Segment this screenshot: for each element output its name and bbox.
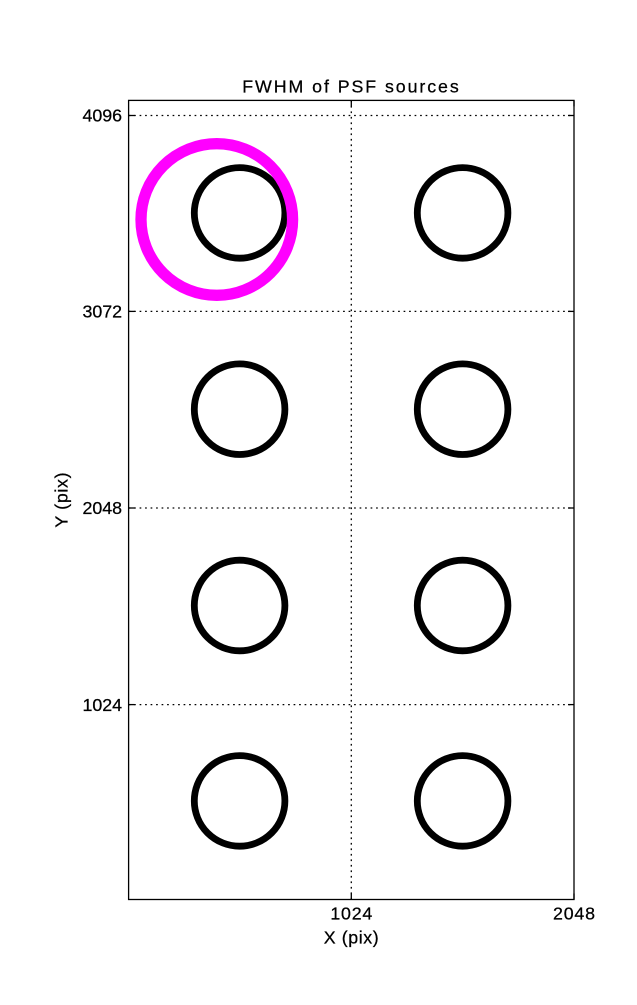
svg-text:1024: 1024 bbox=[330, 904, 373, 924]
svg-text:2048: 2048 bbox=[553, 904, 596, 924]
svg-text:3072: 3072 bbox=[82, 302, 122, 322]
svg-text:Y (pix): Y (pix) bbox=[52, 472, 72, 528]
svg-text:2048: 2048 bbox=[82, 498, 122, 518]
svg-text:4096: 4096 bbox=[82, 106, 122, 126]
svg-text:FWHM of PSF sources: FWHM of PSF sources bbox=[242, 77, 459, 97]
svg-text:1024: 1024 bbox=[82, 695, 122, 715]
svg-text:X (pix): X (pix) bbox=[324, 928, 380, 948]
